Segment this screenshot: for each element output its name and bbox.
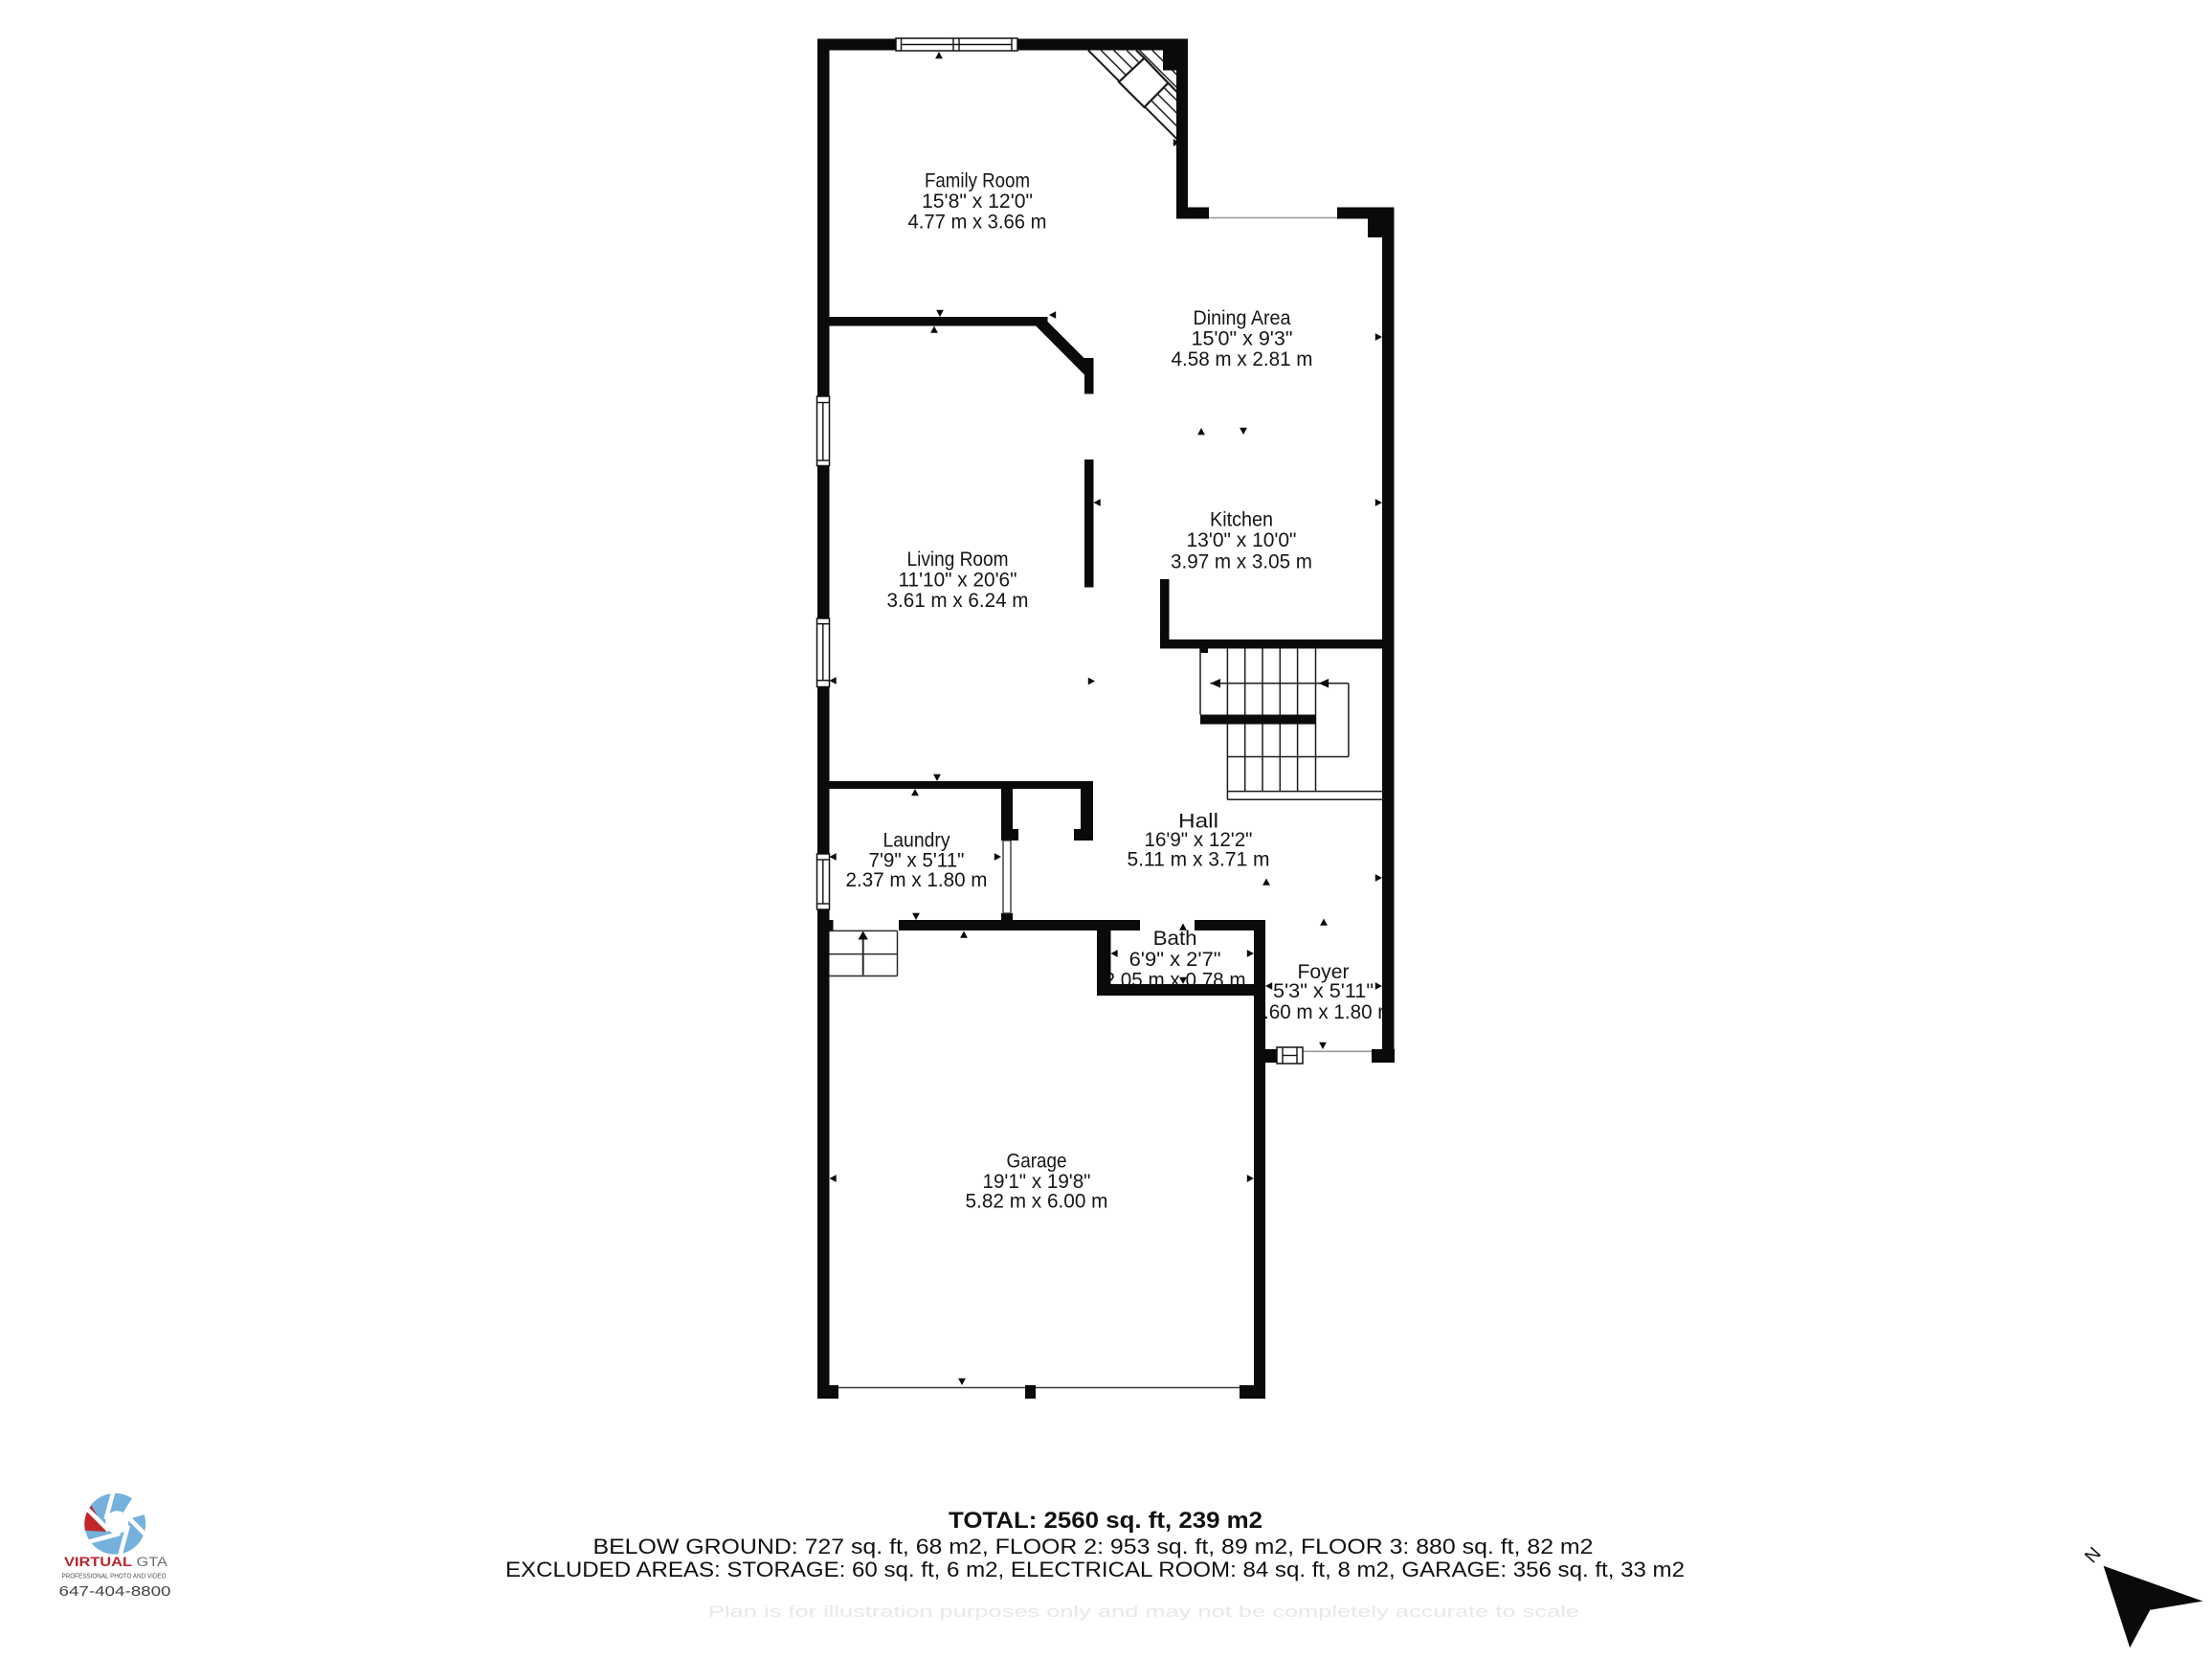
svg-text:4.77 m x 3.66 m: 4.77 m x 3.66 m [908,212,1047,234]
svg-text:PROFESSIONAL PHOTO AND VIDEO: PROFESSIONAL PHOTO AND VIDEO [62,1572,167,1581]
svg-text:TOTAL: 2560 sq. ft, 239 m2: TOTAL: 2560 sq. ft, 239 m2 [949,1508,1262,1534]
svg-text:Laundry: Laundry [883,830,950,852]
svg-text:13'0" x 10'0": 13'0" x 10'0" [1187,529,1297,551]
svg-text:647-404-8800: 647-404-8800 [59,1584,171,1600]
svg-text:1.60 m x 1.80 m: 1.60 m x 1.80 m [1253,1001,1395,1023]
svg-text:Plan is for illustration purpo: Plan is for illustration purposes only a… [708,1603,1579,1621]
svg-text:15'8" x 12'0": 15'8" x 12'0" [922,191,1033,213]
svg-text:BELOW GROUND: 727 sq. ft, 68 m: BELOW GROUND: 727 sq. ft, 68 m2, FLOOR 2… [593,1535,1594,1558]
svg-text:Garage: Garage [1007,1151,1067,1173]
svg-text:4.58 m x 2.81 m: 4.58 m x 2.81 m [1172,348,1313,370]
svg-text:EXCLUDED AREAS: STORAGE: 60 sq: EXCLUDED AREAS: STORAGE: 60 sq. ft, 6 m2… [505,1558,1685,1581]
svg-text:Family Room: Family Room [925,169,1030,191]
svg-text:6'9" x 2'7": 6'9" x 2'7" [1129,949,1221,971]
svg-text:VIRTUAL GTA: VIRTUAL GTA [64,1555,168,1569]
svg-text:5.82 m x 6.00 m: 5.82 m x 6.00 m [966,1191,1108,1213]
svg-text:Bath: Bath [1153,928,1197,950]
svg-text:Kitchen: Kitchen [1210,509,1273,531]
svg-text:Living Room: Living Room [907,549,1009,571]
svg-text:5'3" x 5'11": 5'3" x 5'11" [1273,980,1374,1002]
svg-text:2.37 m x 1.80 m: 2.37 m x 1.80 m [846,869,988,891]
svg-text:3.97 m x 3.05 m: 3.97 m x 3.05 m [1171,550,1312,572]
svg-text:11'10" x 20'6": 11'10" x 20'6" [899,569,1017,591]
svg-text:3.61 m x 6.24 m: 3.61 m x 6.24 m [887,590,1029,612]
svg-text:15'0" x 9'3": 15'0" x 9'3" [1192,327,1293,349]
svg-text:5.11 m x 3.71 m: 5.11 m x 3.71 m [1128,849,1270,871]
svg-text:Dining Area: Dining Area [1194,307,1291,329]
